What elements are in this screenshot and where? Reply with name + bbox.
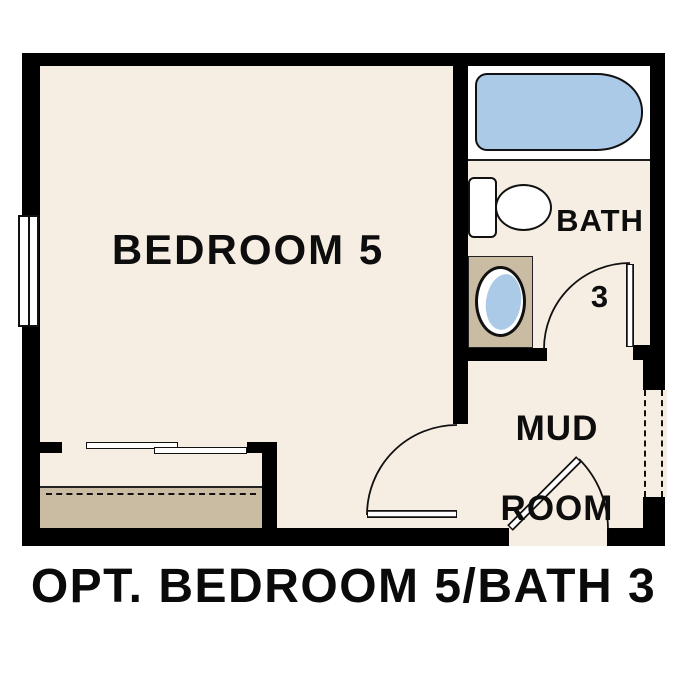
bath-label-line1: BATH bbox=[545, 202, 655, 240]
closet-shelf bbox=[40, 486, 262, 528]
dashed-line-left bbox=[644, 390, 646, 497]
wall-top bbox=[22, 53, 665, 66]
dashed-line-right bbox=[661, 390, 663, 497]
window-icon bbox=[18, 215, 39, 327]
toilet-tank-icon bbox=[468, 177, 497, 238]
bedroom-label: BEDROOM 5 bbox=[98, 228, 398, 272]
wall-closet-right bbox=[262, 453, 277, 528]
wall-right-lower bbox=[643, 497, 665, 546]
window-mullion bbox=[28, 217, 30, 325]
mudroom-label: MUD ROOM bbox=[497, 369, 617, 569]
bath-label: BATH 3 bbox=[545, 164, 655, 354]
toilet-bowl-icon bbox=[495, 184, 552, 231]
bathtub-icon bbox=[475, 73, 643, 151]
wall-under-vanity bbox=[468, 348, 547, 361]
floorplan-page: BEDROOM 5 BATH 3 MUD ROOM OPT. BEDROOM 5… bbox=[0, 0, 687, 687]
wall-closet-stub-right bbox=[247, 442, 277, 453]
closet-rod-dashed-line bbox=[46, 493, 256, 495]
wall-closet-stub-left bbox=[40, 442, 62, 453]
wall-right-mid bbox=[643, 360, 665, 390]
tub-alcove bbox=[468, 66, 650, 161]
closet-sliding-door-right bbox=[154, 447, 247, 454]
optional-opening-dashed bbox=[643, 390, 667, 497]
mudroom-label-line1: MUD bbox=[497, 409, 617, 449]
wall-bottom bbox=[22, 528, 509, 546]
wall-bedroom-bath-divider bbox=[453, 66, 468, 424]
mudroom-label-line2: ROOM bbox=[497, 489, 617, 529]
plan-title: OPT. BEDROOM 5/BATH 3 bbox=[0, 561, 687, 613]
bath-label-line2: 3 bbox=[545, 278, 655, 316]
